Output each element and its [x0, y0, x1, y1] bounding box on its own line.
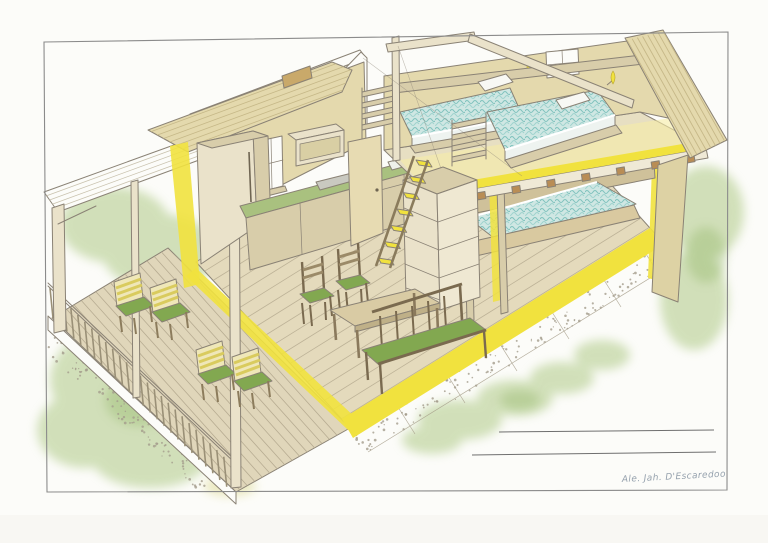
door-knob — [375, 188, 378, 191]
scanned-drawing-page: Ale. Jah. D'Escaredoo — [0, 0, 768, 543]
scan-shadow — [0, 515, 768, 543]
cabin-cutaway-illustration: Ale. Jah. D'Escaredoo — [0, 0, 768, 543]
drawer-tower — [403, 167, 480, 310]
